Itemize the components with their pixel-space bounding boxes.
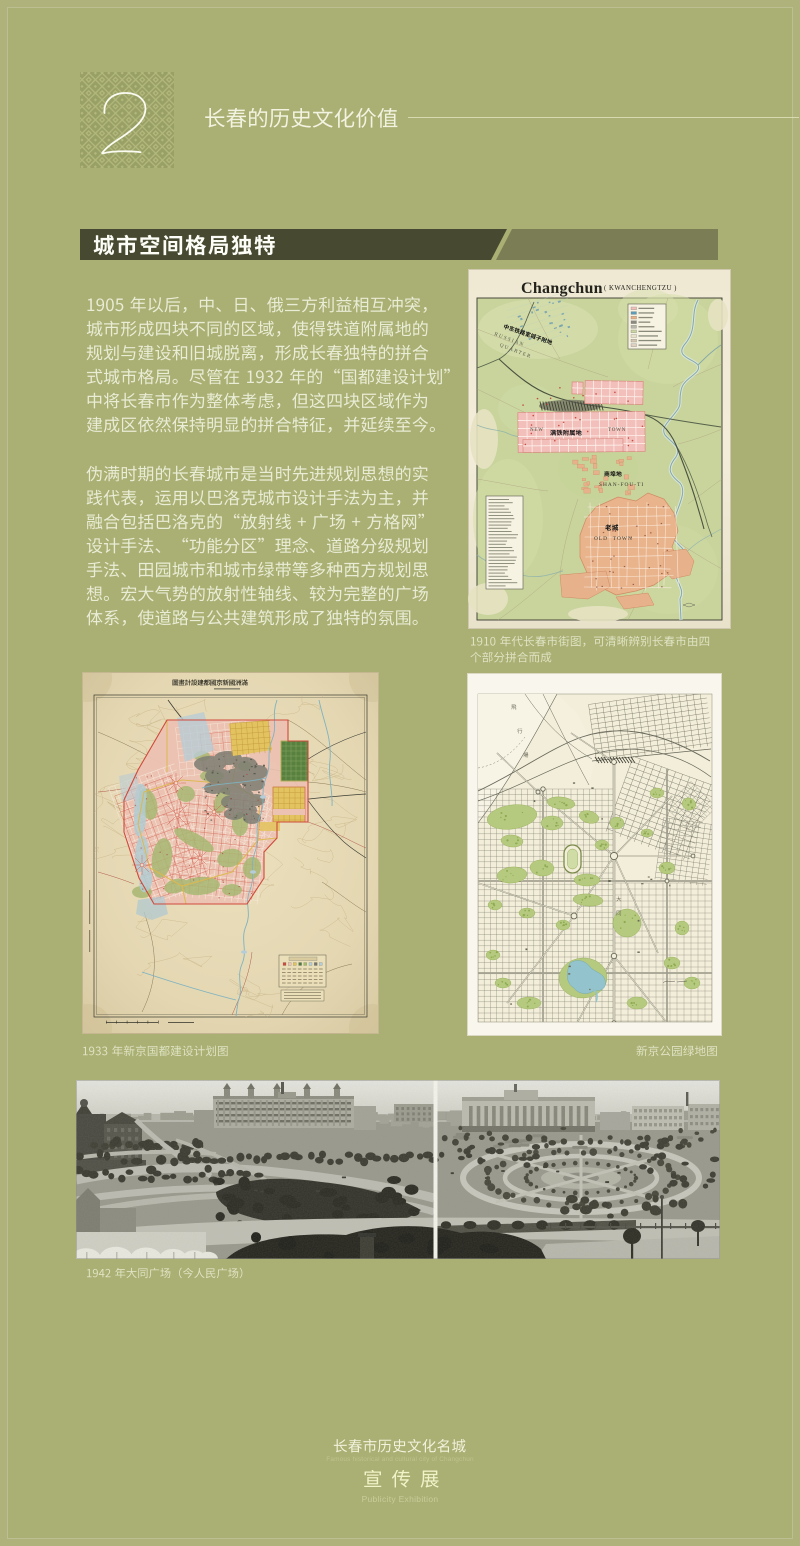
svg-text:SHAN-FOU-TI: SHAN-FOU-TI	[599, 482, 644, 488]
svg-text:( KWANCHENGTZU ): ( KWANCHENGTZU )	[604, 285, 677, 292]
svg-text:OLD TOWN: OLD TOWN	[594, 536, 633, 542]
svg-text:NEW: NEW	[530, 428, 544, 433]
svg-text:TOWN: TOWN	[608, 428, 626, 433]
svg-text:Changchun: Changchun	[521, 280, 603, 297]
